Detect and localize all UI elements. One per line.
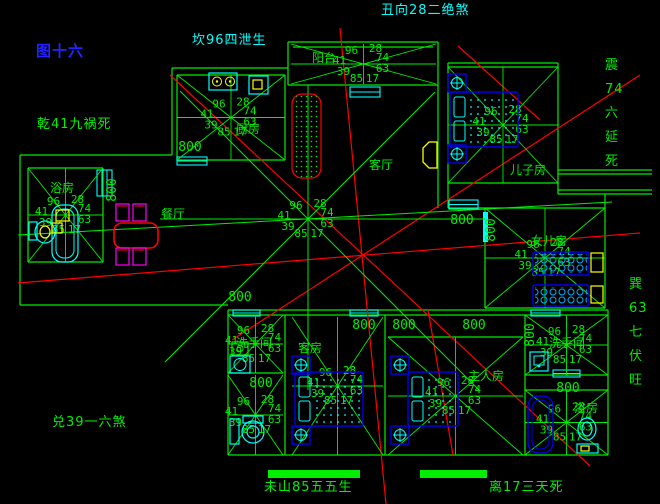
svg-text:800: 800: [450, 213, 473, 228]
svg-text:主人房: 主人房: [468, 368, 504, 383]
svg-text:39: 39: [540, 424, 553, 437]
bed-master: [408, 372, 458, 426]
svg-text:800: 800: [352, 318, 375, 333]
svg-text:85: 85: [350, 72, 363, 85]
svg-text:800: 800: [249, 376, 272, 391]
svg-text:96: 96: [237, 395, 250, 408]
svg-text:85: 85: [52, 223, 65, 236]
compass-label-facing: 丑向28二绝煞: [381, 3, 470, 18]
compass-label-qian: 乾41九祸死: [37, 117, 112, 132]
svg-text:39: 39: [229, 416, 242, 429]
floorplan-canvas: 9628417439638517962841743963851796284174…: [0, 0, 660, 504]
svg-text:17: 17: [310, 227, 323, 240]
svg-text:洗手间: 洗手间: [549, 336, 585, 350]
svg-text:800: 800: [523, 323, 538, 346]
svg-text:85: 85: [553, 431, 566, 444]
svg-text:800: 800: [484, 218, 499, 241]
zhen-char: 死: [605, 154, 624, 178]
compass-label-li: 离17三天死: [489, 480, 564, 495]
svg-text:浴房: 浴房: [574, 400, 598, 415]
xun-char: 旺: [629, 373, 648, 397]
svg-text:39: 39: [337, 65, 350, 78]
svg-text:餐厅: 餐厅: [161, 206, 185, 221]
svg-text:800: 800: [228, 290, 251, 305]
svg-text:17: 17: [258, 352, 271, 365]
compass-label-dui: 兑39一六煞: [52, 415, 127, 430]
svg-text:洗手间: 洗手间: [236, 336, 272, 350]
compass-label-mountain: 未山85五五生: [264, 480, 353, 495]
svg-text:客房: 客房: [298, 340, 322, 355]
svg-text:女儿房: 女儿房: [531, 233, 567, 248]
svg-text:17: 17: [569, 353, 582, 366]
svg-text:800: 800: [462, 318, 485, 333]
compass-label-zhen: 震 74 六 延 死: [605, 58, 624, 178]
zhen-char: 延: [605, 130, 624, 154]
tv-icon: [423, 142, 437, 168]
svg-text:39: 39: [281, 220, 294, 233]
zhen-char: 震: [605, 58, 624, 82]
xun-char: 七: [629, 325, 648, 349]
svg-text:96: 96: [548, 403, 561, 416]
svg-text:800: 800: [178, 140, 201, 155]
xun-char: 63: [629, 301, 648, 325]
svg-text:96: 96: [212, 98, 225, 111]
kitchen-sink-icon: [249, 76, 268, 94]
svg-text:85: 85: [294, 227, 307, 240]
compass-label-xun: 巽 63 七 伏 旺: [629, 277, 648, 397]
svg-text:17: 17: [258, 423, 271, 436]
svg-text:85: 85: [553, 353, 566, 366]
plant-icon: [292, 94, 321, 178]
svg-text:儿子房: 儿子房: [510, 162, 546, 177]
xun-char: 伏: [629, 349, 648, 373]
figure-label: 图十六: [36, 44, 84, 59]
bed-son: [450, 92, 518, 147]
svg-text:39: 39: [518, 259, 531, 272]
bed-guest: [295, 372, 363, 426]
dining-table: [114, 223, 158, 248]
svg-text:17: 17: [458, 404, 471, 417]
flying-star-bath-right: 9628417439638517: [525, 390, 608, 455]
svg-text:浴房: 浴房: [50, 180, 74, 195]
sink-icon-3: [577, 444, 598, 453]
svg-text:96: 96: [345, 44, 358, 57]
zhen-char: 74: [605, 82, 624, 106]
svg-text:96: 96: [289, 199, 302, 212]
zhen-char: 六: [605, 106, 624, 130]
svg-text:17: 17: [366, 72, 379, 85]
svg-text:800: 800: [556, 381, 579, 396]
compass-label-kan: 坎96四泄生: [192, 33, 267, 48]
svg-text:800: 800: [105, 178, 120, 201]
svg-text:39: 39: [204, 119, 217, 132]
svg-text:800: 800: [392, 318, 415, 333]
svg-text:阳台: 阳台: [312, 50, 336, 65]
svg-text:客厅: 客厅: [369, 157, 393, 172]
dining-chairs: [116, 204, 146, 265]
svg-text:85: 85: [217, 126, 230, 139]
svg-text:厨房: 厨房: [236, 121, 260, 136]
xun-char: 巽: [629, 277, 648, 301]
